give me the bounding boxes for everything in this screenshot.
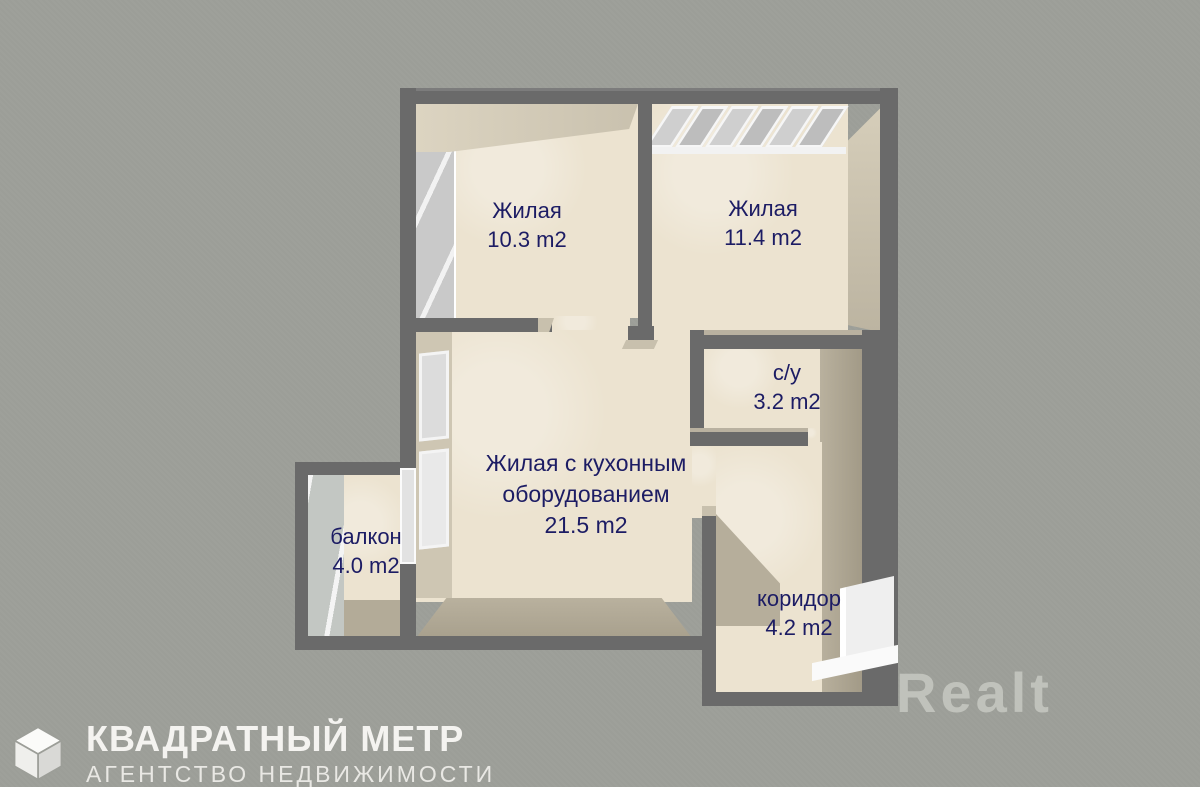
room-area: 11.4 m2 xyxy=(724,223,802,252)
agency-branding: КВАДРАТНЫЙ МЕТР АГЕНТСТВО НЕДВИЖИМОСТИ xyxy=(10,720,495,787)
room-label-living1: Жилая 10.3 m2 xyxy=(487,196,567,254)
room-name: Жилая xyxy=(724,194,802,223)
wall-divider-top-rooms xyxy=(638,104,652,328)
room-label-living2: Жилая 11.4 m2 xyxy=(724,194,802,252)
wall-balcony-top xyxy=(295,462,400,475)
agency-name: КВАДРАТНЫЙ МЕТР xyxy=(86,720,495,758)
wall-cap xyxy=(702,506,716,516)
floorplan-canvas: Жилая 10.3 m2 Жилая 11.4 m2 с/у 3.2 m2 Ж… xyxy=(0,0,1200,787)
room-name: с/у xyxy=(753,358,820,387)
room-name: коридор xyxy=(757,584,841,613)
wall-left xyxy=(400,88,416,650)
room-area: 21.5 m2 xyxy=(486,510,687,541)
wall-top xyxy=(400,88,898,104)
room-label-kitchen-living: Жилая с кухонным оборудованием 21.5 m2 xyxy=(486,448,687,541)
room-name: оборудованием xyxy=(486,479,687,510)
wall-bathroom-left xyxy=(690,330,704,444)
room-label-balcony: балкон 4.0 m2 xyxy=(330,522,401,580)
wall-cap xyxy=(622,340,658,349)
room-name: Жилая с кухонным xyxy=(486,448,687,479)
room-area: 3.2 m2 xyxy=(753,387,820,416)
room2-right-wall-face xyxy=(848,104,880,332)
room-area: 4.2 m2 xyxy=(757,613,841,642)
balcony-room-window xyxy=(400,468,416,564)
wall-right-upper xyxy=(880,88,898,332)
center-window-lower xyxy=(419,448,449,549)
wall-middle-left xyxy=(416,318,552,332)
wall-balcony-left xyxy=(295,462,308,650)
balcony-floor-face xyxy=(344,600,400,636)
wall-bathroom-bottom xyxy=(690,428,808,446)
room2-top-window-row xyxy=(658,106,844,148)
cube-icon xyxy=(10,725,66,783)
room-area: 10.3 m2 xyxy=(487,225,567,254)
agency-subtitle: АГЕНТСТВО НЕДВИЖИМОСТИ xyxy=(86,760,495,787)
room-name: балкон xyxy=(330,522,401,551)
room2-window-sill xyxy=(652,147,846,154)
room-label-bathroom: с/у 3.2 m2 xyxy=(753,358,820,416)
wall-bottom-main xyxy=(400,636,716,650)
center-window-upper xyxy=(419,350,449,441)
room-area: 4.0 m2 xyxy=(330,551,401,580)
room-name: Жилая xyxy=(487,196,567,225)
wall-corridor-bottom xyxy=(702,692,898,706)
agency-text: КВАДРАТНЫЙ МЕТР АГЕНТСТВО НЕДВИЖИМОСТИ xyxy=(86,720,495,787)
realt-watermark: Realt xyxy=(896,660,1053,725)
center-bottom-wall-face xyxy=(416,598,692,638)
wall-balcony-bottom xyxy=(295,636,400,650)
wall-corridor-left xyxy=(702,514,716,694)
room-label-corridor: коридор 4.2 m2 xyxy=(757,584,841,642)
